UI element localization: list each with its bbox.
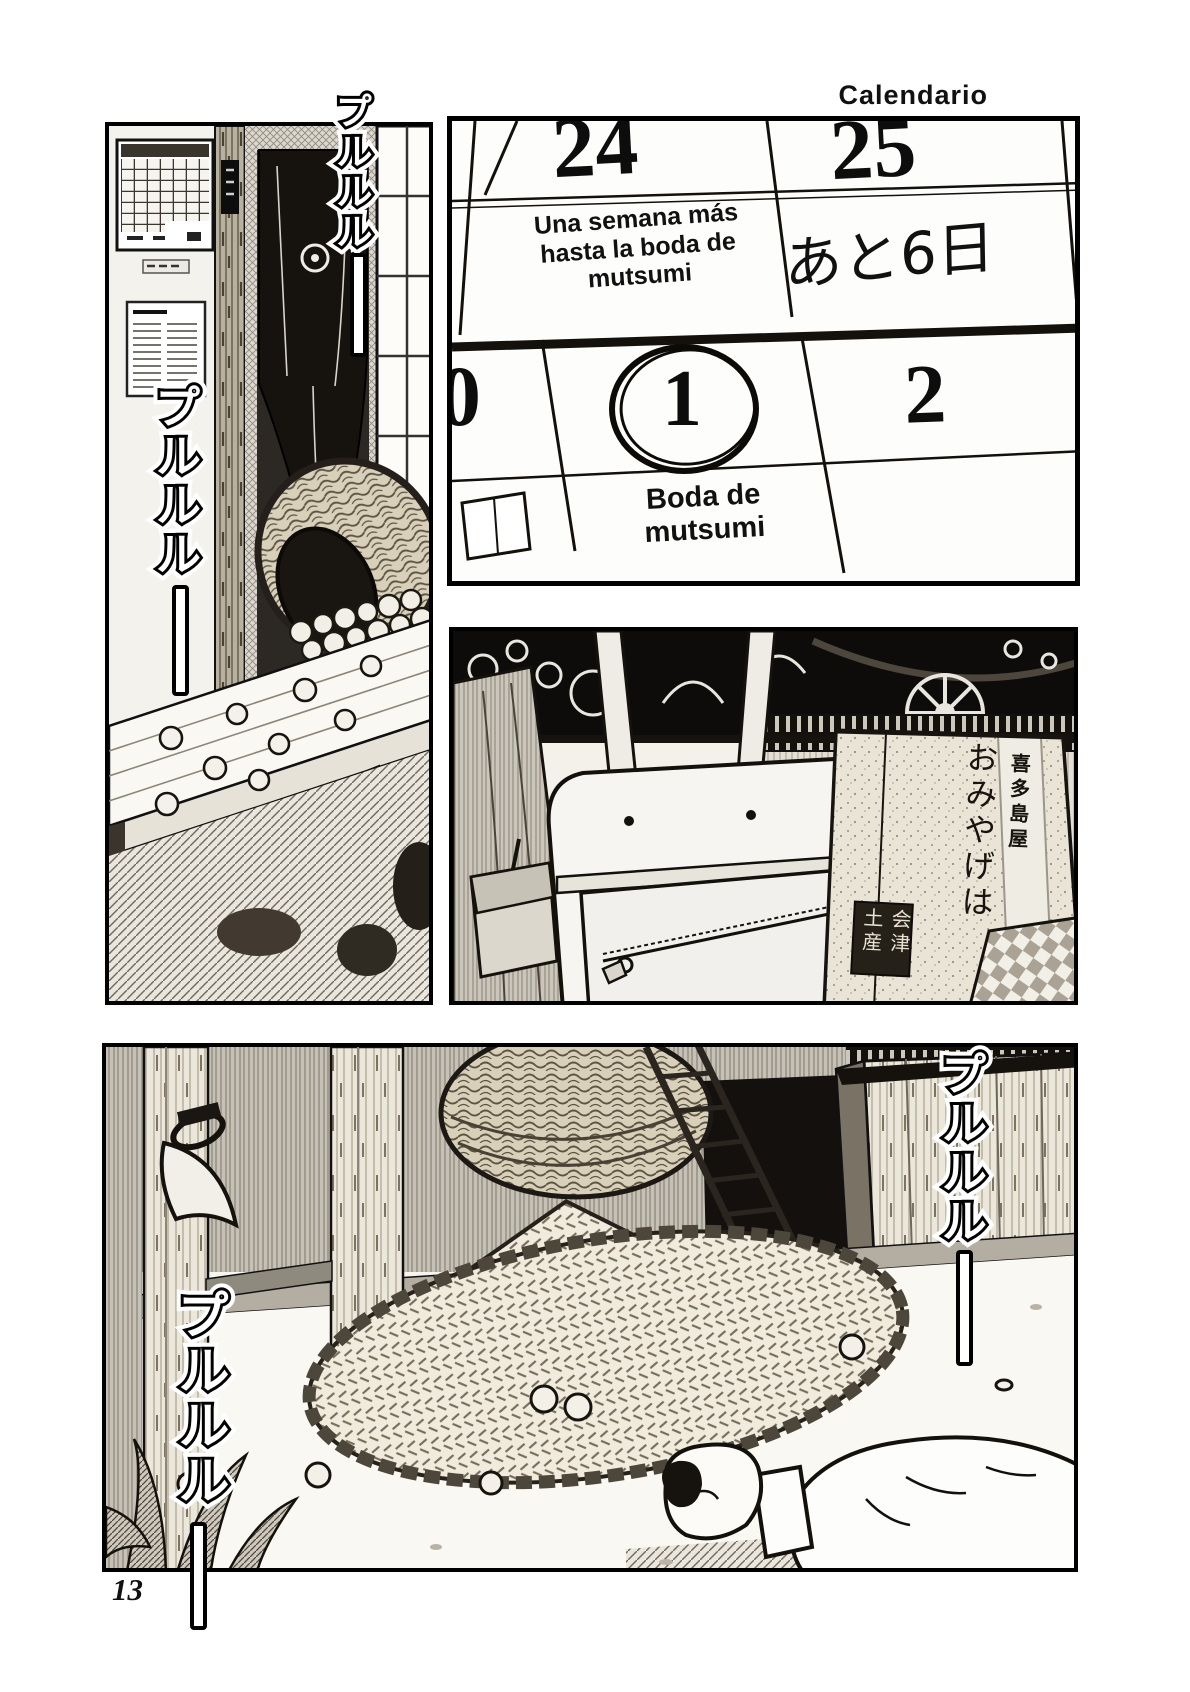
calendar-day-2: 2 [903,352,948,437]
chapter-title: Calendario [838,80,988,111]
reaching-arm [626,1437,1078,1572]
shopping-bag-text: おみやげは [952,740,1004,921]
calendar-event: Boda de mutsumi [592,475,815,553]
calendar-day-25: 25 [828,116,918,193]
sfx-elongation-bar [350,253,367,357]
sfx-elongation-bar [190,1522,207,1630]
page-number: 13 [112,1572,143,1608]
calendar-day-0: 0 [447,353,481,439]
panel-luggage: おみやげは 喜多島屋 会津土産 [449,627,1078,1005]
wall-label [143,260,189,273]
calendar-day-1: 1 [662,359,702,439]
sfx-elongation-bar [956,1250,973,1366]
panel-calendar-closeup: 24 25 Una semana más hasta la boda de mu… [447,116,1080,586]
calendar-note: Una semana más hasta la boda de mutsumi [507,196,768,299]
panel-earthen-floor [102,1043,1078,1572]
wall-calendar [117,140,213,250]
bus-schedule-poster [127,302,205,396]
manga-page: Calendario [0,0,1190,1692]
calendar-day-24: 24 [550,116,640,191]
round-basket [441,1047,711,1197]
shopping-bag-shop-name: 喜多島屋 [1002,753,1034,854]
book-icon [462,493,530,559]
sfx-elongation-bar [172,585,189,696]
shopping-bag-stamp-text: 会津土産 [855,907,914,972]
door-pillar [215,126,245,726]
pillar-nameplate [221,160,239,214]
